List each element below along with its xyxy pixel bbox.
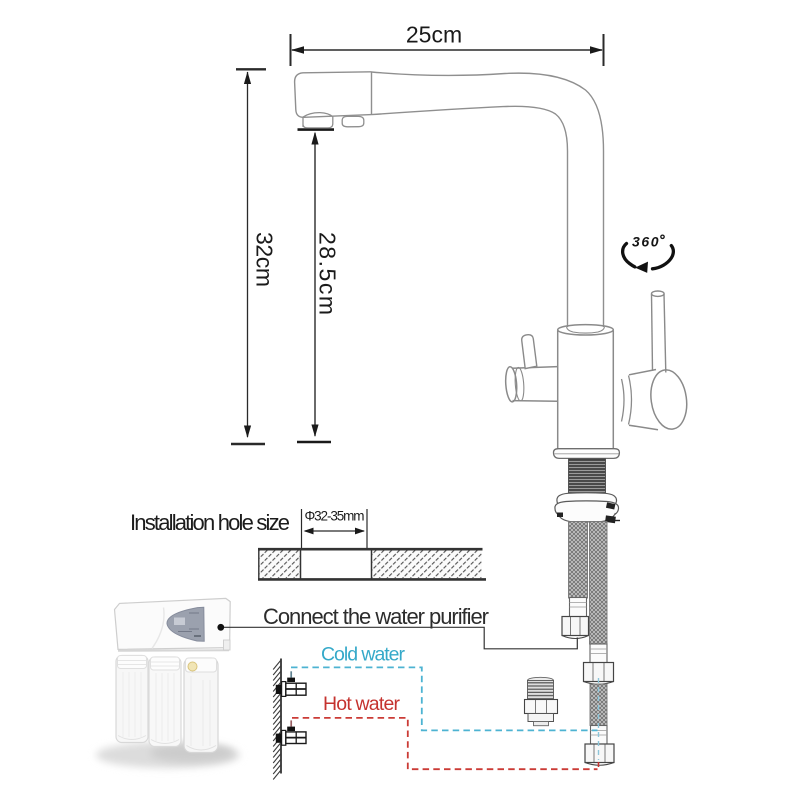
svg-text:32cm: 32cm (252, 232, 278, 287)
svg-text:Φ32-35mm: Φ32-35mm (305, 509, 365, 524)
svg-text:Hot water: Hot water (323, 693, 401, 715)
svg-text:28.5cm: 28.5cm (315, 232, 341, 315)
svg-text:Connect the water purifier: Connect the water purifier (263, 604, 489, 629)
svg-text:360: 360 (632, 234, 659, 250)
svg-text:25cm: 25cm (406, 22, 462, 48)
svg-text:Cold water: Cold water (321, 644, 406, 666)
svg-text:Installation hole size: Installation hole size (130, 510, 290, 535)
